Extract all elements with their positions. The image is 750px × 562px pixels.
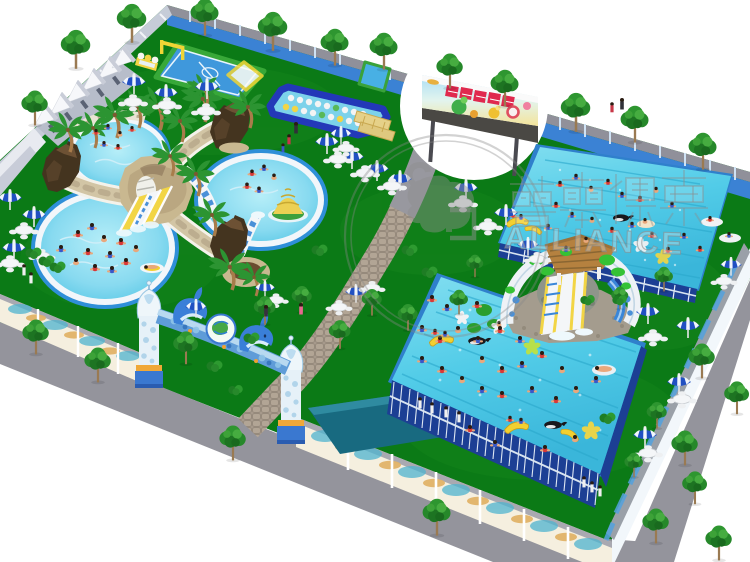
svg-text:ALLIANCE: ALLIANCE [504,220,686,261]
